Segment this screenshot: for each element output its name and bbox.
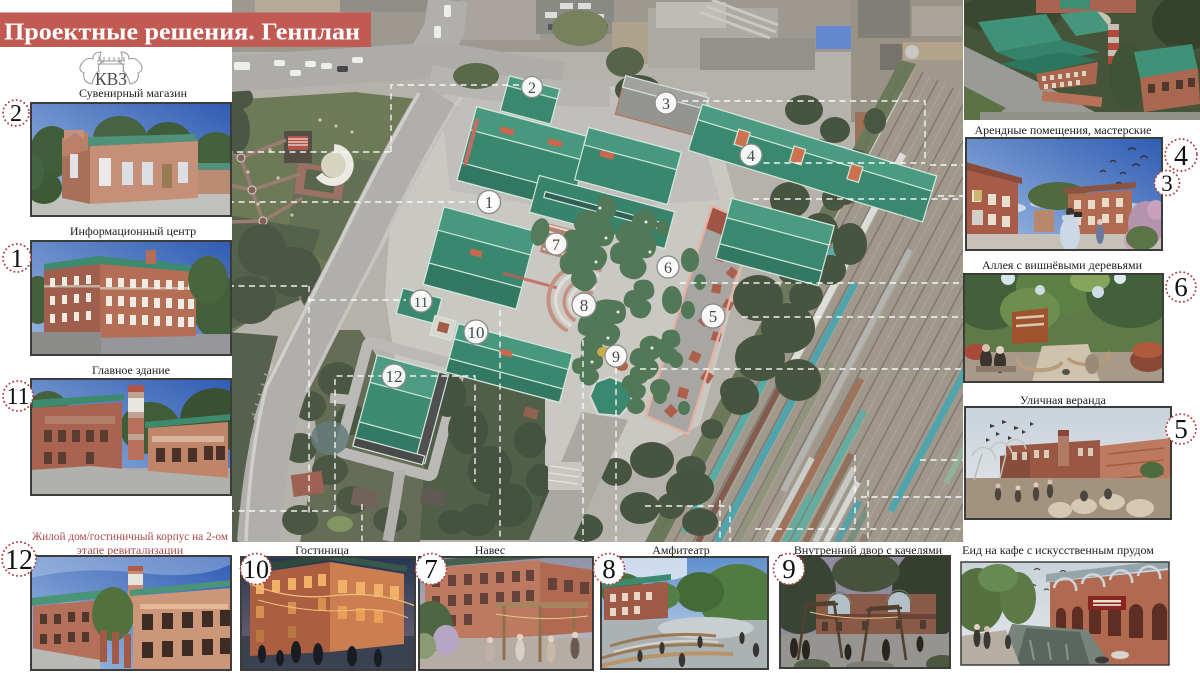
svg-text:Навес: Навес xyxy=(475,543,506,557)
svg-text:Уличная веранда: Уличная веранда xyxy=(1020,393,1107,407)
svg-text:Главное здание: Главное здание xyxy=(92,363,170,377)
svg-text:Сувенирный магазин: Сувенирный магазин xyxy=(79,86,188,100)
svg-text:2: 2 xyxy=(528,80,536,97)
svg-text:3: 3 xyxy=(1161,171,1173,196)
svg-text:1: 1 xyxy=(11,244,24,273)
svg-text:12: 12 xyxy=(386,367,403,386)
svg-text:Гостиница: Гостиница xyxy=(295,543,349,557)
svg-text:7: 7 xyxy=(552,237,560,254)
svg-text:8: 8 xyxy=(602,554,616,584)
svg-text:11: 11 xyxy=(414,295,428,311)
svg-text:4: 4 xyxy=(1174,141,1188,172)
svg-text:Амфитеатр: Амфитеатр xyxy=(652,543,710,557)
svg-text:2: 2 xyxy=(10,101,22,127)
svg-text:10: 10 xyxy=(243,555,269,584)
svg-text:Внутренний двор с качелями: Внутренний двор с качелями xyxy=(794,543,943,557)
svg-text:8: 8 xyxy=(580,296,589,315)
svg-text:Арендные помещения, мастерские: Арендные помещения, мастерские xyxy=(974,123,1151,137)
svg-text:9: 9 xyxy=(782,554,796,584)
svg-text:1: 1 xyxy=(485,193,494,212)
svg-text:Еид на кафе с искусственным пр: Еид на кафе с искусственным прудом xyxy=(962,543,1154,557)
svg-text:Аллея с вишнёвыми деревьями: Аллея с вишнёвыми деревьями xyxy=(982,258,1143,272)
svg-text:6: 6 xyxy=(1174,272,1188,302)
svg-text:10: 10 xyxy=(468,323,485,342)
svg-text:11: 11 xyxy=(6,384,29,410)
svg-text:Информационный центр: Информационный центр xyxy=(70,224,196,238)
svg-text:12: 12 xyxy=(5,545,33,576)
svg-text:3: 3 xyxy=(662,96,670,113)
svg-text:5: 5 xyxy=(709,307,718,326)
svg-text:5: 5 xyxy=(1174,414,1188,444)
svg-text:4: 4 xyxy=(747,148,755,165)
svg-text:Жилой дом/гостиничный корпус н: Жилой дом/гостиничный корпус на 2-ом xyxy=(32,529,228,543)
svg-text:Проектные решения. Генплан: Проектные решения. Генплан xyxy=(4,19,360,46)
svg-text:этапе ревитализации: этапе ревитализации xyxy=(77,543,184,557)
svg-text:9: 9 xyxy=(612,349,620,366)
svg-text:7: 7 xyxy=(424,554,438,584)
svg-text:6: 6 xyxy=(664,260,672,277)
